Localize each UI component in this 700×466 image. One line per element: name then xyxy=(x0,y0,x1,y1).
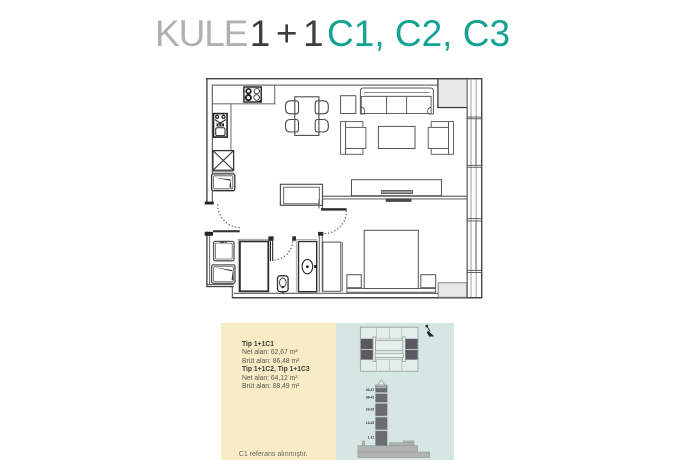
svg-text:43-47: 43-47 xyxy=(366,388,375,392)
svg-text:1-11: 1-11 xyxy=(368,435,375,439)
svg-text:13-23: 13-23 xyxy=(366,421,375,425)
svg-text:38-42: 38-42 xyxy=(366,395,375,399)
svg-text:23-33: 23-33 xyxy=(366,407,375,411)
